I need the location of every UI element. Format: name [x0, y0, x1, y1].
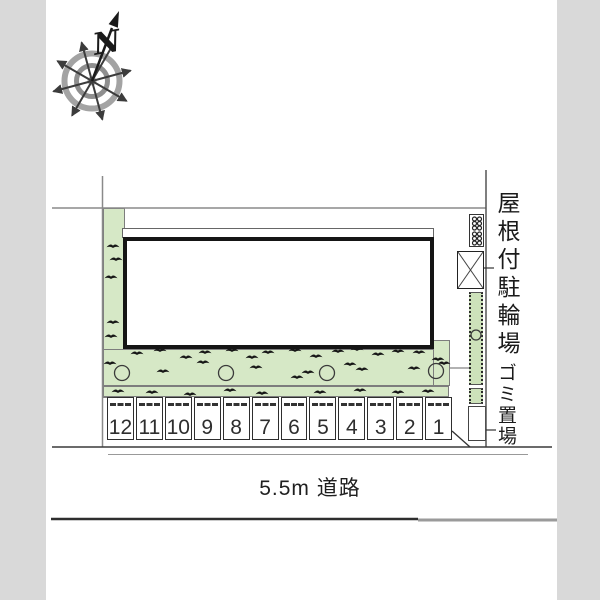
stall-number: 2 — [397, 406, 422, 439]
stall-number: 9 — [195, 406, 220, 439]
green-band-main — [103, 349, 450, 386]
parking-stall: 9 — [194, 397, 221, 440]
parking-stall: 7 — [252, 397, 279, 440]
building-outline — [123, 237, 434, 349]
compass-spokes — [53, 42, 130, 119]
stall-number: 4 — [339, 406, 364, 439]
covered-bicycle-shed-box — [457, 251, 484, 289]
compass-north-label: N — [89, 23, 125, 63]
parking-stall: 6 — [281, 397, 308, 440]
parking-stall: 3 — [367, 397, 394, 440]
parking-stall: 5 — [309, 397, 336, 440]
stall-number: 11 — [137, 406, 162, 439]
stall-number: 5 — [310, 406, 335, 439]
parking-stall: 10 — [165, 397, 192, 440]
site-plan: 121110987654321 — [0, 0, 600, 600]
stall-number: 3 — [368, 406, 393, 439]
road-width-label: 5.5m 道路 — [225, 472, 395, 502]
stall-number: 10 — [166, 406, 191, 439]
parking-stall: 11 — [136, 397, 163, 440]
stall-number: 7 — [253, 406, 278, 439]
stall-number: 6 — [282, 406, 307, 439]
north-arrow-icon — [92, 11, 119, 81]
garbage-area-box — [468, 406, 486, 441]
hedge-strip-lower — [469, 388, 483, 404]
parking-stall: 1 — [425, 397, 452, 440]
right-margin-band — [557, 0, 600, 600]
covered-bicycle-parking-label: 屋根付駐輪場 — [490, 191, 524, 359]
compass-rose: N — [53, 11, 130, 120]
parking-stall: 8 — [223, 397, 250, 440]
green-band-right-extension — [433, 340, 450, 386]
stall-number: 8 — [224, 406, 249, 439]
parking-stall: 4 — [338, 397, 365, 440]
parking-stalls: 121110987654321 — [107, 397, 452, 440]
garbage-area-label: ゴミ置場 — [492, 363, 519, 447]
hedge-strip-upper — [469, 292, 483, 385]
stall-number: 12 — [108, 406, 133, 439]
parking-stall: 2 — [396, 397, 423, 440]
left-margin-band — [0, 0, 46, 600]
green-band-lower — [103, 386, 449, 397]
bike-rack-box — [469, 214, 484, 247]
stall-number: 1 — [426, 406, 451, 439]
parking-stall: 12 — [107, 397, 134, 440]
